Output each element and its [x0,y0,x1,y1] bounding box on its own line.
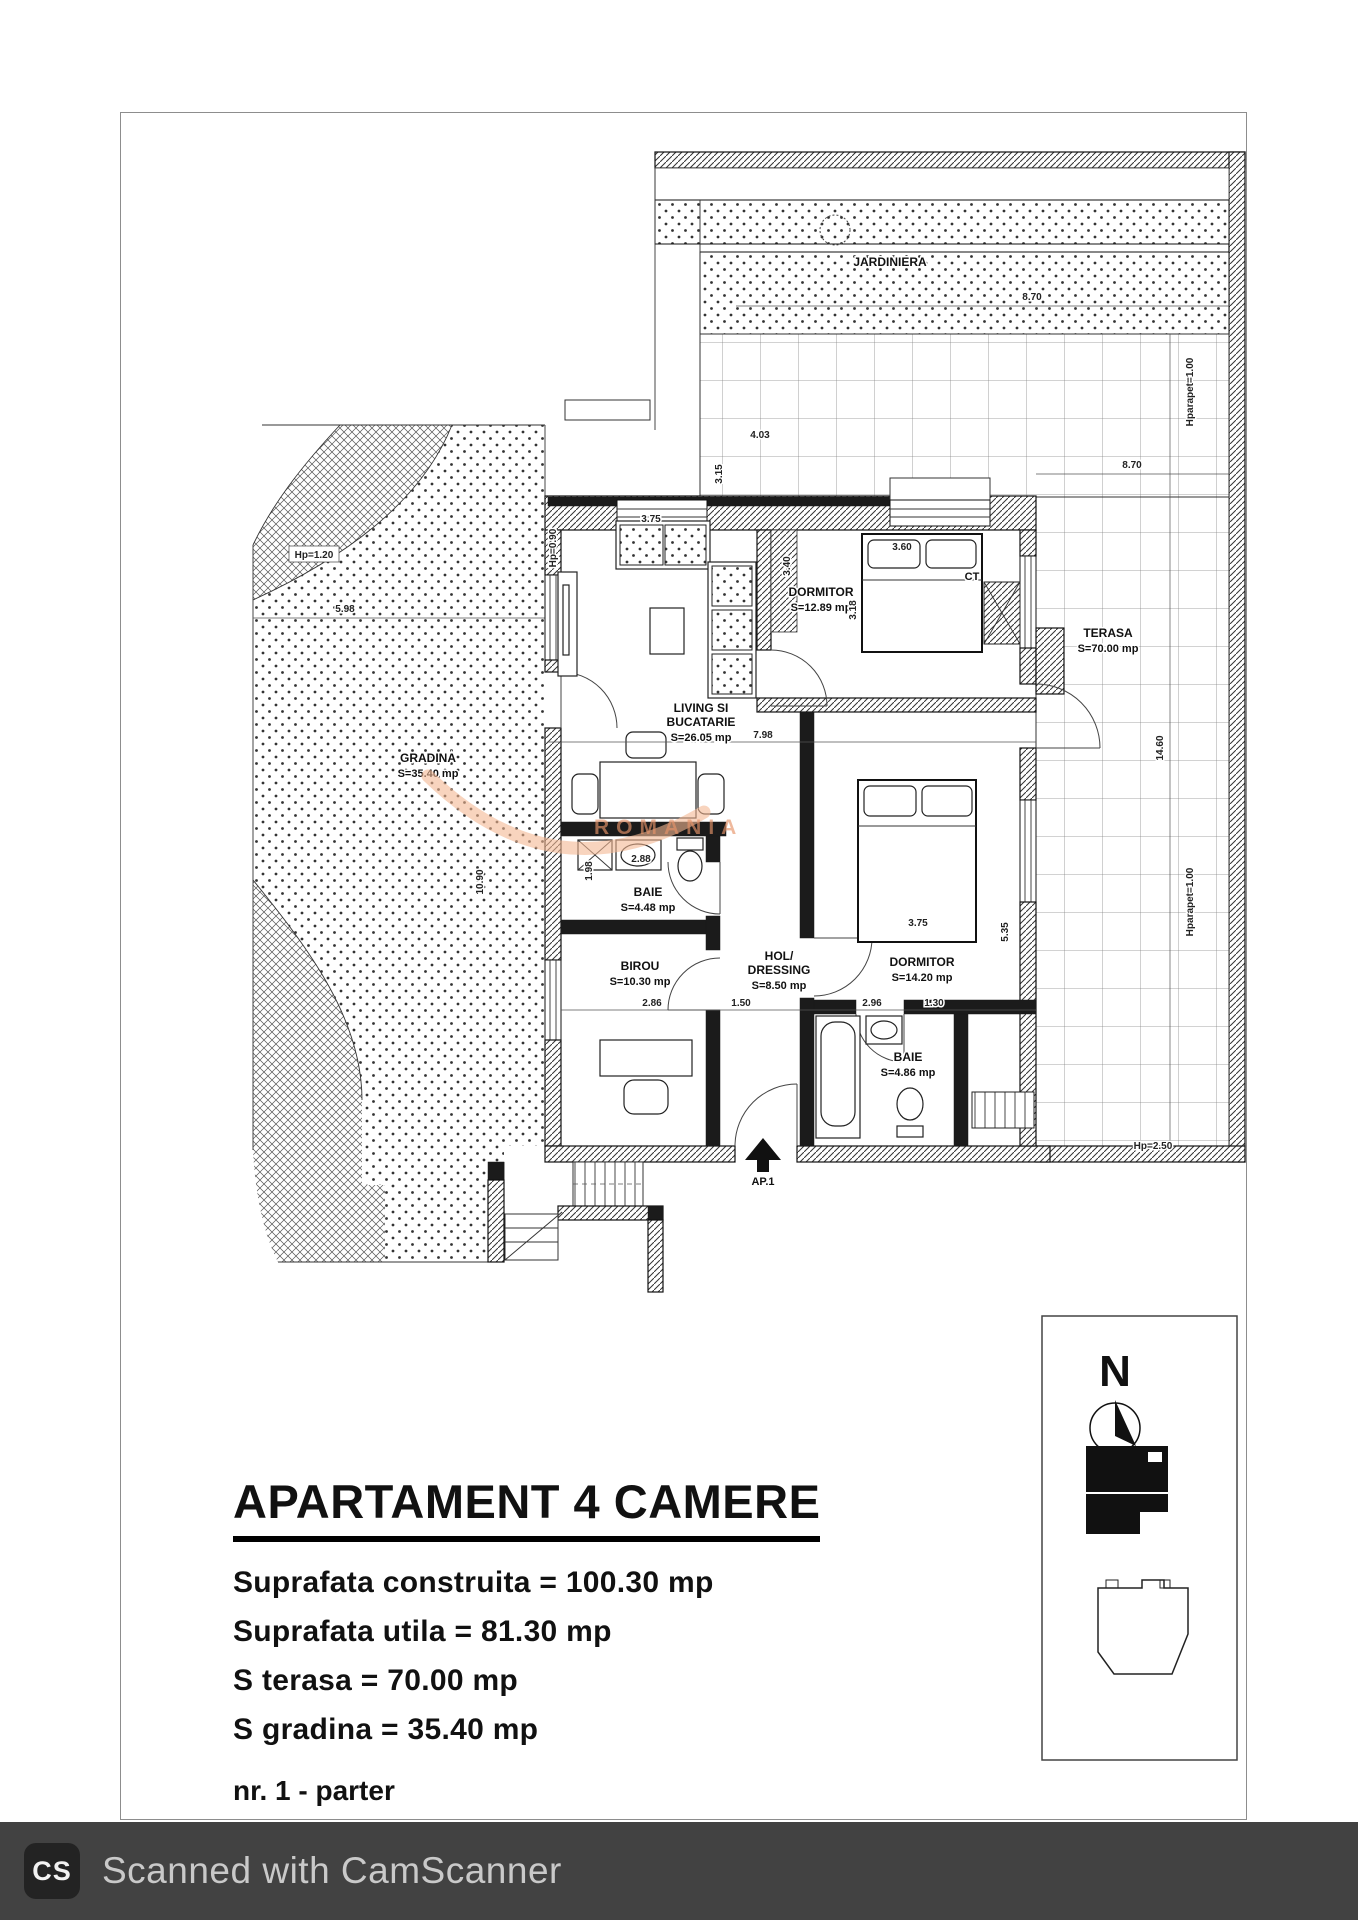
hol-label-1: HOL/ [765,949,794,963]
title-block: APARTAMENT 4 CAMERE Suprafata construita… [233,1474,820,1807]
baie1-label: BAIE [634,885,663,899]
compass-box: N [1042,1316,1237,1760]
romania-watermark-text: ROMANIA [594,816,743,840]
dim-150: 1.50 [731,998,751,1009]
dormitor2-area: S=14.20 mp [892,972,953,984]
hol-area: S=8.50 mp [752,980,807,992]
coffee-table [650,608,684,654]
dim-360: 3.60 [892,542,912,553]
dim-130: 1.30 [924,998,944,1009]
dim-375a: 3.75 [641,514,661,525]
dim-598: 5.98 [335,604,355,615]
gradina-label: GRADINA [400,751,456,765]
living-area: S=26.05 mp [671,732,732,744]
scanned-floorplan-page: { "title_block": { "title": "APARTAMENT … [0,0,1358,1920]
dim-403: 4.03 [750,430,770,441]
birou-area: S=10.30 mp [610,976,671,988]
bed-dormitor1 [862,534,982,652]
camscanner-footer-text: Scanned with CamScanner [102,1850,562,1892]
dim-1090: 10.90 [475,869,486,894]
dim-288: 2.88 [631,854,651,865]
dim-hp090: Hp=0.90 [548,528,559,567]
jardiniera-label: JARDINIERA [853,255,927,269]
dim-870b: 8.70 [1122,460,1142,471]
desk-chair [624,1080,668,1114]
spec-gradina: S gradina = 35.40 mp [233,1713,820,1747]
spec-suprafata-construita: Suprafata construita = 100.30 mp [233,1566,820,1600]
dim-315: 3.15 [714,464,725,484]
chair [626,732,666,758]
dormitor2-label: DORMITOR [889,955,954,969]
dim-296: 2.96 [862,998,882,1009]
dim-1460: 14.60 [1155,735,1166,760]
living-label-2: BUCATARIE [667,715,736,729]
unit-number: nr. 1 - parter [233,1775,820,1807]
closet [972,1092,1034,1128]
terasa-area: S=70.00 mp [1078,643,1139,655]
dim-318: 3.18 [848,600,859,620]
dim-hp120: Hp=1.20 [295,550,334,561]
baie1-area: S=4.48 mp [621,902,676,914]
camscanner-footer: CS Scanned with CamScanner [0,1822,1358,1920]
baie2-area: S=4.86 mp [881,1067,936,1079]
entrance-label: AP.1 [751,1176,774,1188]
dim-198: 1.98 [584,861,595,881]
toilet [897,1088,923,1120]
dim-340: 3.40 [782,556,793,576]
spec-terasa: S terasa = 70.00 mp [233,1664,820,1698]
chair [572,774,598,814]
dining-table [600,762,696,818]
spec-suprafata-utila: Suprafata utila = 81.30 mp [233,1615,820,1649]
dim-798: 7.98 [753,730,773,741]
entrance-marker: AP.1 [745,1138,781,1188]
hol-label-2: DRESSING [748,963,811,977]
living-label-1: LIVING SI [674,701,729,715]
dim-375b: 3.75 [908,918,928,929]
apartment-title: APARTAMENT 4 CAMERE [233,1474,820,1542]
desk [600,1040,692,1076]
dim-286: 2.86 [642,998,662,1009]
dim-535: 5.35 [1000,922,1011,942]
dim-870a: 8.70 [1022,292,1042,303]
north-label: N [1099,1347,1131,1396]
birou-label: BIROU [621,959,660,973]
dim-hparapet1: Hparapet=1.00 [1185,357,1196,426]
stairs [488,1162,663,1292]
camscanner-logo-icon: CS [24,1843,80,1899]
dormitor1-label: DORMITOR [788,585,853,599]
baie2-label: BAIE [894,1050,923,1064]
dim-hp250: Hp=2.50 [1134,1141,1173,1152]
terasa-label: TERASA [1083,626,1133,640]
dim-hparapet2: Hparapet=1.00 [1185,867,1196,936]
ct-label: CT [965,571,980,583]
dormitor1-area: S=12.89 mp [791,602,852,614]
